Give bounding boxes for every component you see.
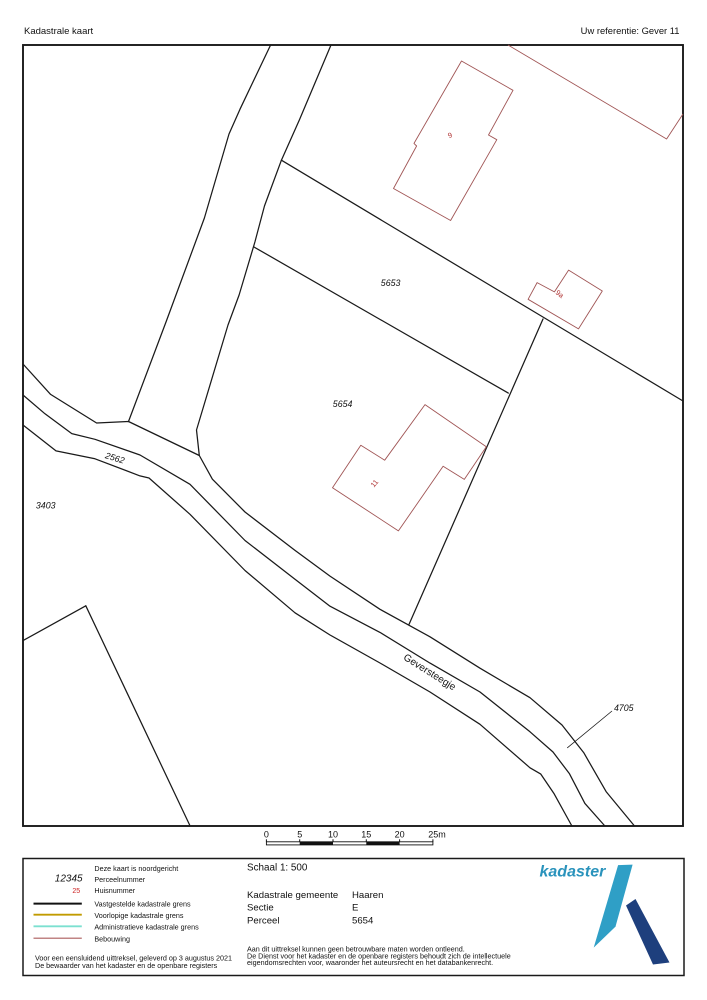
svg-text:10: 10 <box>328 830 338 840</box>
svg-text:3403: 3403 <box>36 501 56 511</box>
svg-text:25m: 25m <box>428 830 446 840</box>
svg-text:12345: 12345 <box>55 874 83 885</box>
svg-text:Haaren: Haaren <box>352 890 383 901</box>
svg-text:Sectie: Sectie <box>247 903 274 914</box>
svg-text:E: E <box>352 903 358 914</box>
svg-text:Schaal 1: 500: Schaal 1: 500 <box>247 862 308 873</box>
svg-text:Huisnummer: Huisnummer <box>94 886 135 895</box>
svg-text:Administratieve kadastrale gre: Administratieve kadastrale grens <box>94 922 199 931</box>
svg-text:15: 15 <box>361 830 371 840</box>
svg-text:De bewaarder van het kadaster: De bewaarder van het kadaster en de open… <box>35 961 218 970</box>
svg-text:Kadastrale gemeente: Kadastrale gemeente <box>247 890 338 901</box>
svg-text:20: 20 <box>395 830 405 840</box>
svg-text:5654: 5654 <box>333 399 353 409</box>
svg-text:25: 25 <box>72 888 80 895</box>
svg-text:Perceel: Perceel <box>247 916 280 927</box>
svg-text:4705: 4705 <box>614 703 634 713</box>
svg-text:0: 0 <box>264 830 269 840</box>
svg-text:kadaster: kadaster <box>540 864 607 881</box>
svg-text:5: 5 <box>297 830 302 840</box>
svg-text:Vastgestelde kadastrale grens: Vastgestelde kadastrale grens <box>94 900 191 909</box>
svg-text:Kadastrale kaart: Kadastrale kaart <box>24 26 94 37</box>
svg-text:eigendomsrechten voor, waarond: eigendomsrechten voor, waaronder het aut… <box>247 958 493 967</box>
svg-text:Uw referentie: Gever 11: Uw referentie: Gever 11 <box>581 25 680 36</box>
svg-text:Voorlopige kadastrale grens: Voorlopige kadastrale grens <box>94 911 184 920</box>
svg-text:5654: 5654 <box>352 916 374 927</box>
svg-text:Perceelnummer: Perceelnummer <box>94 875 145 884</box>
svg-text:Bebouwing: Bebouwing <box>94 934 130 943</box>
svg-text:Deze kaart is noordgericht: Deze kaart is noordgericht <box>94 864 178 873</box>
svg-text:5653: 5653 <box>381 278 401 288</box>
